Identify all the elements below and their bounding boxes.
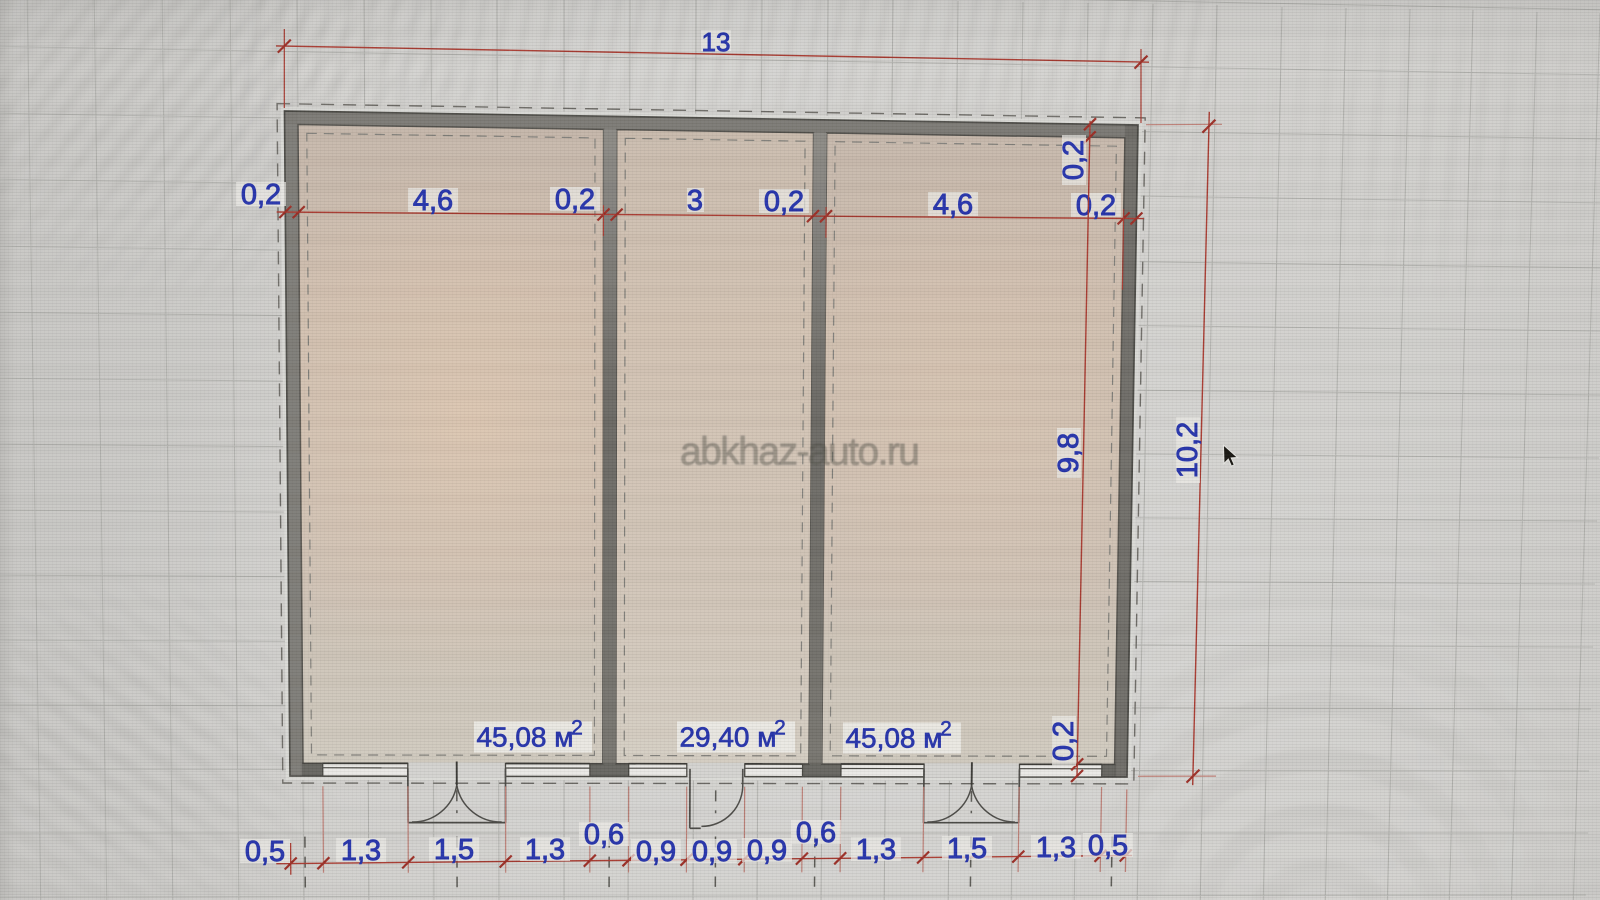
svg-text:0,2: 0,2: [241, 179, 281, 211]
svg-text:0,5: 0,5: [1088, 830, 1128, 862]
svg-text:0,9: 0,9: [636, 836, 676, 868]
svg-text:0,5: 0,5: [245, 836, 285, 868]
svg-text:4,6: 4,6: [933, 189, 973, 221]
svg-text:2: 2: [940, 718, 952, 741]
svg-text:1,5: 1,5: [947, 833, 987, 865]
svg-text:0,6: 0,6: [584, 819, 624, 851]
svg-text:0,2: 0,2: [1048, 721, 1080, 761]
svg-text:3: 3: [687, 185, 703, 217]
svg-text:1,3: 1,3: [856, 834, 896, 866]
svg-text:0,2: 0,2: [555, 184, 595, 216]
svg-text:13: 13: [702, 27, 731, 57]
svg-text:29,40 м: 29,40 м: [679, 722, 776, 753]
svg-text:0,6: 0,6: [796, 817, 836, 849]
svg-text:2: 2: [774, 717, 786, 740]
svg-text:1,3: 1,3: [525, 834, 565, 866]
svg-text:0,2: 0,2: [764, 186, 804, 218]
svg-text:0,9: 0,9: [692, 836, 732, 868]
svg-text:1,3: 1,3: [341, 835, 381, 867]
svg-text:45,08 м: 45,08 м: [845, 723, 942, 754]
svg-text:2: 2: [571, 717, 583, 740]
svg-text:1,3: 1,3: [1036, 832, 1076, 864]
svg-text:4,6: 4,6: [413, 185, 453, 217]
svg-text:0,2: 0,2: [1076, 190, 1116, 222]
svg-text:abkhaz-auto.ru: abkhaz-auto.ru: [680, 431, 920, 474]
svg-text:9,8: 9,8: [1053, 433, 1085, 473]
svg-text:0,9: 0,9: [747, 835, 787, 867]
svg-text:10,2: 10,2: [1172, 422, 1204, 478]
svg-text:45,08 м: 45,08 м: [476, 722, 573, 753]
svg-text:1,5: 1,5: [434, 834, 474, 866]
svg-text:0,2: 0,2: [1058, 140, 1090, 180]
